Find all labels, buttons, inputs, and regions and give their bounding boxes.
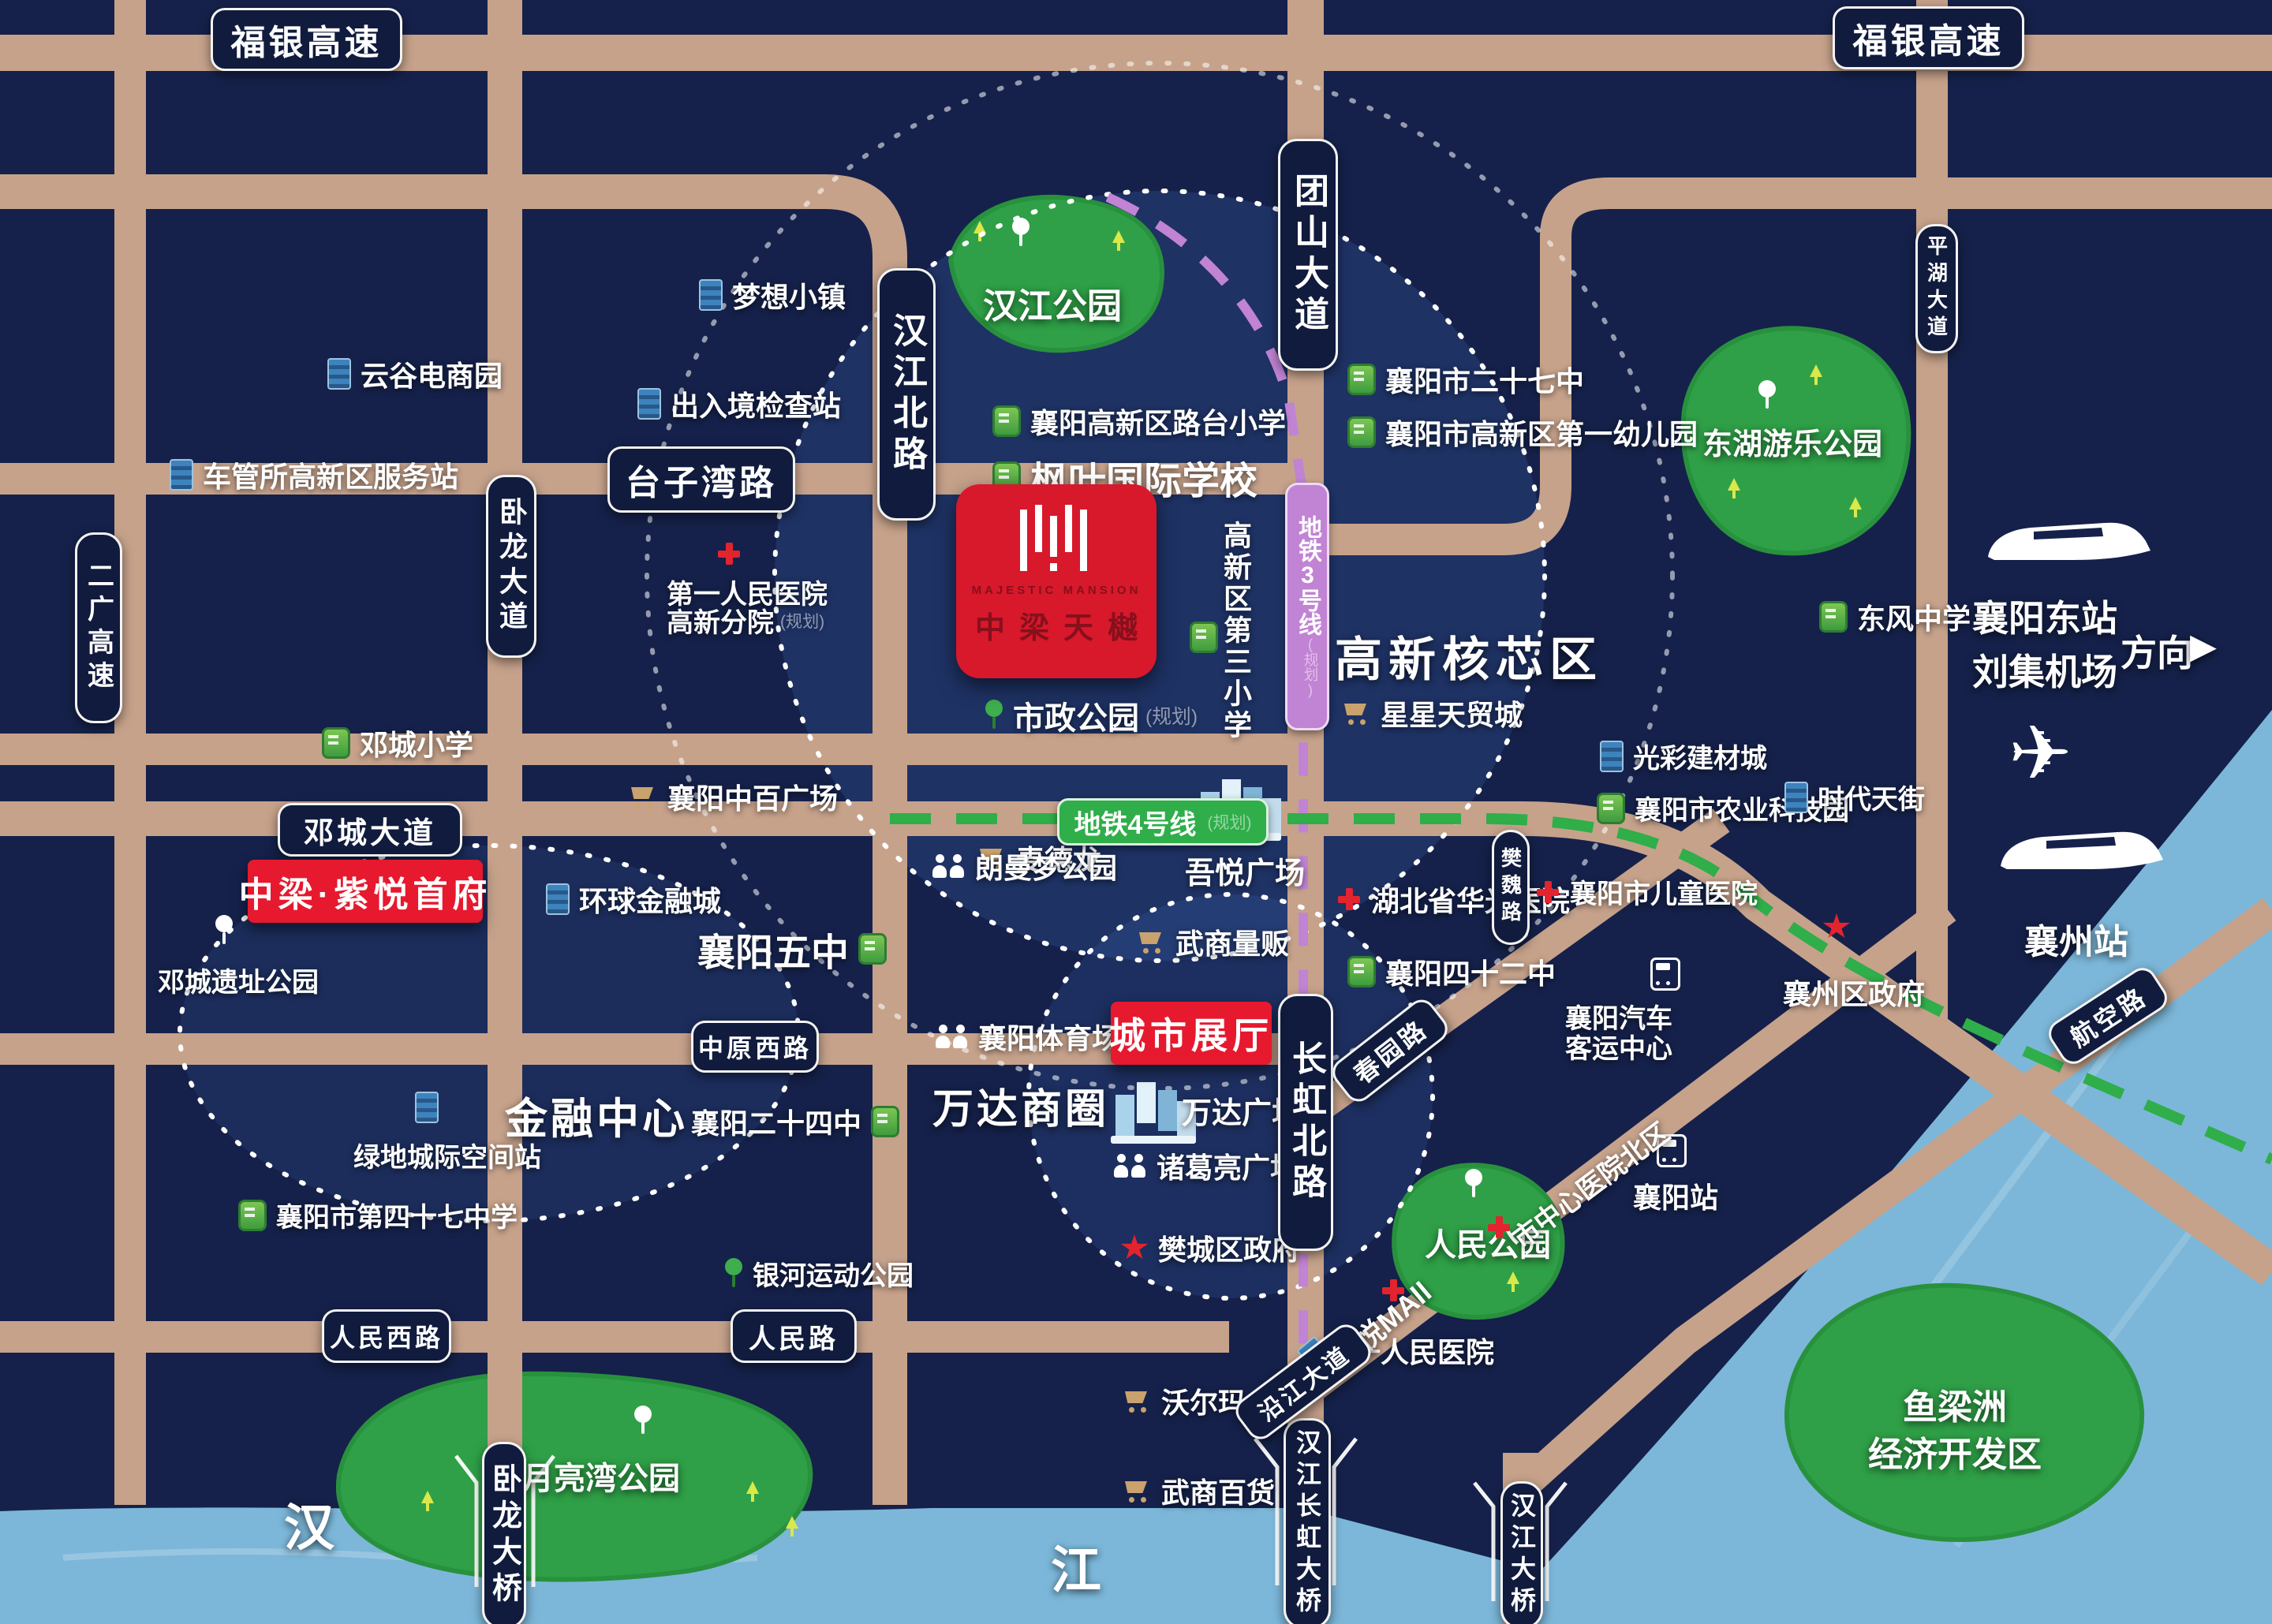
poi-襄阳二十四中: 襄阳二十四中 <box>691 1101 899 1142</box>
road-badge-福银高速: 福银高速 <box>1833 6 2024 69</box>
people-icon <box>932 854 966 878</box>
school-icon <box>871 1106 899 1137</box>
cross-icon <box>1535 879 1560 905</box>
road-badge-汉江大桥: 汉江大桥 <box>1500 1481 1543 1624</box>
building-icon <box>415 1092 439 1123</box>
school-icon <box>1347 416 1376 448</box>
highlight-badge-中梁·紫悦首府: 中梁·紫悦首府 <box>248 860 483 923</box>
school-icon <box>238 1200 267 1231</box>
road-badge-二广高速: 二广高速 <box>75 532 122 723</box>
poi-朗曼梦公园: 朗曼梦公园 <box>932 846 1117 887</box>
poi-襄阳高新区路台小学: 襄阳高新区路台小学 <box>992 401 1286 442</box>
poi-银河运动公园: 银河运动公园 <box>724 1254 914 1293</box>
road-badge-福银高速: 福银高速 <box>211 8 402 71</box>
building-icon <box>1600 741 1624 772</box>
poi-襄州区政府: 襄州区政府 <box>1783 972 1925 1013</box>
plane-icon: ✈ <box>2009 711 2072 796</box>
xiangyang-location-map: ✈ MAJESTIC MANSION 中梁天樾 福银高速福银高速台子湾路邓城大道… <box>0 0 2272 1624</box>
road-badge-汉江北路: 汉江北路 <box>877 268 936 521</box>
school-icon <box>1597 793 1625 824</box>
poi-star <box>1822 913 1860 940</box>
poi-樊城区政府: 樊城区政府 <box>1120 1227 1300 1268</box>
poi-诸葛亮广场: 诸葛亮广场 <box>1114 1145 1299 1186</box>
building-icon <box>327 358 351 390</box>
poi-武商量贩: 武商量贩 <box>1138 921 1289 962</box>
building-icon <box>637 388 661 420</box>
road-badge-卧龙大道: 卧龙大道 <box>486 475 536 658</box>
poi-高新区第三小学: 高新区第三小学 <box>1215 521 1256 741</box>
tree-icon <box>985 700 1003 731</box>
poi-环球金融城: 环球金融城 <box>546 879 721 920</box>
school-icon <box>858 933 887 965</box>
poi-市政公园: 市政公园(规划) <box>985 693 1198 738</box>
building-icon <box>699 279 723 311</box>
poi-襄阳站: 襄阳站 <box>1633 1175 1718 1216</box>
road-badge-平湖大道: 平湖大道 <box>1915 224 1958 353</box>
poi-星星天贸城: 星星天贸城 <box>1343 693 1523 734</box>
building-icon <box>546 883 570 915</box>
school-icon <box>1819 601 1848 633</box>
road-badge-卧龙大桥: 卧龙大桥 <box>482 1442 526 1624</box>
poi-building <box>415 1092 448 1123</box>
area-label-高新核芯区: 高新核芯区 <box>1335 622 1603 690</box>
school-icon <box>1190 622 1218 653</box>
area-label-刘集机场: 刘集机场 <box>1972 644 2117 696</box>
poi-cross <box>716 541 751 566</box>
star-icon <box>1120 1234 1149 1261</box>
metro-line4-badge-地铁4号线: 地铁4号线(规划) <box>1057 798 1269 846</box>
treepin-icon <box>215 915 234 946</box>
school-icon <box>1347 364 1376 395</box>
area-label-汉江公园: 汉江公园 <box>983 278 1122 328</box>
poi-吾悦广场: 吾悦广场 <box>1185 849 1305 892</box>
area-label-襄州站: 襄州站 <box>2024 913 2128 964</box>
people-icon <box>1114 1154 1147 1178</box>
poi-云谷电商园: 云谷电商园 <box>327 353 503 394</box>
poi-襄阳市二十七中: 襄阳市二十七中 <box>1347 359 1584 400</box>
poi-襄阳市高新区第一幼儿园: 襄阳市高新区第一幼儿园 <box>1347 412 1698 453</box>
area-label-江: 江 <box>1051 1530 1101 1603</box>
cart-icon <box>630 785 658 808</box>
highlight-badge-城市展厅: 城市展厅 <box>1111 1002 1272 1065</box>
poi-邓城小学: 邓城小学 <box>322 722 473 763</box>
train-icons <box>1988 523 2163 869</box>
poi-沃尔玛: 沃尔玛 <box>1123 1380 1246 1421</box>
poi-车管所高新区服务站: 车管所高新区服务站 <box>170 454 458 495</box>
area-label-▶: ▶ <box>2190 626 2217 666</box>
area-label-襄阳东站: 襄阳东站 <box>1972 590 2117 642</box>
area-label-万达商圈: 万达商圈 <box>932 1076 1109 1135</box>
poi-客运中心: 客运中心 <box>1565 1027 1672 1066</box>
school-icon <box>322 727 350 759</box>
poi-襄阳中百广场: 襄阳中百广场 <box>630 776 838 817</box>
road-badge-汉江长虹大桥: 汉江长虹大桥 <box>1284 1418 1331 1624</box>
building-icon <box>170 459 193 491</box>
road-badge-人民路: 人民路 <box>731 1309 857 1363</box>
cross-icon <box>716 541 742 566</box>
cart-icon <box>1343 701 1371 725</box>
road-badge-中原西路: 中原西路 <box>691 1021 819 1073</box>
area-label-鱼梁洲: 鱼梁洲 <box>1903 1379 2007 1429</box>
poi-东风中学: 东风中学 <box>1819 596 1971 637</box>
poi-出入境检查站: 出入境检查站 <box>637 383 841 424</box>
poi-襄阳市第四十七中学: 襄阳市第四十七中学 <box>238 1196 518 1234</box>
tree-icon <box>724 1258 743 1290</box>
poi-绿地城际空间站: 绿地城际空间站 <box>353 1136 541 1174</box>
building-icon <box>1784 782 1808 813</box>
poi-襄阳市儿童医院: 襄阳市儿童医院 <box>1535 872 1758 911</box>
area-label-东湖游乐公园: 东湖游乐公园 <box>1702 420 1882 463</box>
road-badge-团山大道: 团山大道 <box>1278 139 1338 371</box>
road-badge-长虹北路: 长虹北路 <box>1278 994 1333 1251</box>
star-icon <box>1822 913 1851 940</box>
poi-treepin <box>215 915 243 946</box>
cart-icon <box>1123 1389 1152 1413</box>
school-icon <box>992 405 1021 437</box>
road-badge-人民西路: 人民西路 <box>322 1309 451 1363</box>
logo-mark-icon <box>1018 505 1094 573</box>
cart-icon <box>1138 930 1166 954</box>
poi-襄阳五中: 襄阳五中 <box>697 921 887 976</box>
road-badge-邓城大道: 邓城大道 <box>278 803 462 857</box>
poi-襄阳四十二中: 襄阳四十二中 <box>1347 951 1556 992</box>
bus-icon <box>1650 958 1680 991</box>
area-label-汉: 汉 <box>284 1488 334 1560</box>
poi-邓城遗址公园: 邓城遗址公园 <box>158 961 319 999</box>
school-icon <box>1347 956 1376 987</box>
road-badge-台子湾路: 台子湾路 <box>607 446 795 513</box>
poi-梦想小镇: 梦想小镇 <box>699 274 846 315</box>
road-badge-樊魏路: 樊魏路 <box>1492 830 1530 945</box>
poi-高新分院: 高新分院(规划) <box>667 601 824 640</box>
logo-english-name: MAJESTIC MANSION <box>972 584 1142 597</box>
people-icon <box>936 1025 969 1048</box>
poi-时代天街: 时代天街 <box>1784 778 1925 816</box>
metro-line3-badge-地铁3号线: 地铁3号线(规划) <box>1285 483 1329 730</box>
cross-icon <box>1336 887 1362 912</box>
poi-bus <box>1650 958 1690 991</box>
poi-襄阳体育场: 襄阳体育场 <box>936 1016 1120 1057</box>
poi-武商百货: 武商百货 <box>1123 1470 1275 1511</box>
area-label-经济开发区: 经济开发区 <box>1868 1426 2042 1477</box>
area-label-方向: 方向 <box>2121 625 2193 677</box>
poi-光彩建材城: 光彩建材城 <box>1600 737 1767 775</box>
logo-chinese-name: 中梁天樾 <box>961 603 1152 647</box>
cart-icon <box>1123 1479 1152 1503</box>
project-logo: MAJESTIC MANSION 中梁天樾 <box>956 484 1157 678</box>
area-label-月亮湾公园: 月亮湾公园 <box>522 1453 680 1499</box>
